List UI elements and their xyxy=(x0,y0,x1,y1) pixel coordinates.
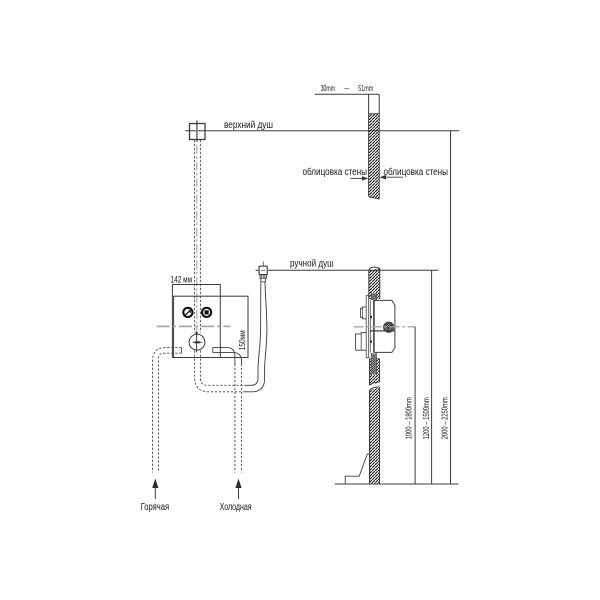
svg-text:облицовка стены: облицовка стены xyxy=(384,166,449,178)
svg-text:–: – xyxy=(344,83,349,93)
svg-text:51mm: 51mm xyxy=(358,83,373,93)
svg-text:верхний душ: верхний душ xyxy=(224,120,273,131)
svg-text:Холодная: Холодная xyxy=(220,502,252,513)
svg-text:облицовка стены: облицовка стены xyxy=(303,166,368,178)
svg-text:1200 – 1500mm: 1200 – 1500mm xyxy=(422,397,431,439)
svg-text:Горячая: Горячая xyxy=(141,502,169,513)
svg-text:142 мм: 142 мм xyxy=(171,274,193,284)
svg-text:150мм: 150мм xyxy=(238,330,247,350)
svg-text:2000 – 2250mm: 2000 – 2250mm xyxy=(441,397,450,439)
svg-text:30mm: 30mm xyxy=(321,83,335,93)
svg-text:ручной душ: ручной душ xyxy=(290,258,334,269)
svg-text:1000 – 1800mm: 1000 – 1800mm xyxy=(404,397,413,439)
